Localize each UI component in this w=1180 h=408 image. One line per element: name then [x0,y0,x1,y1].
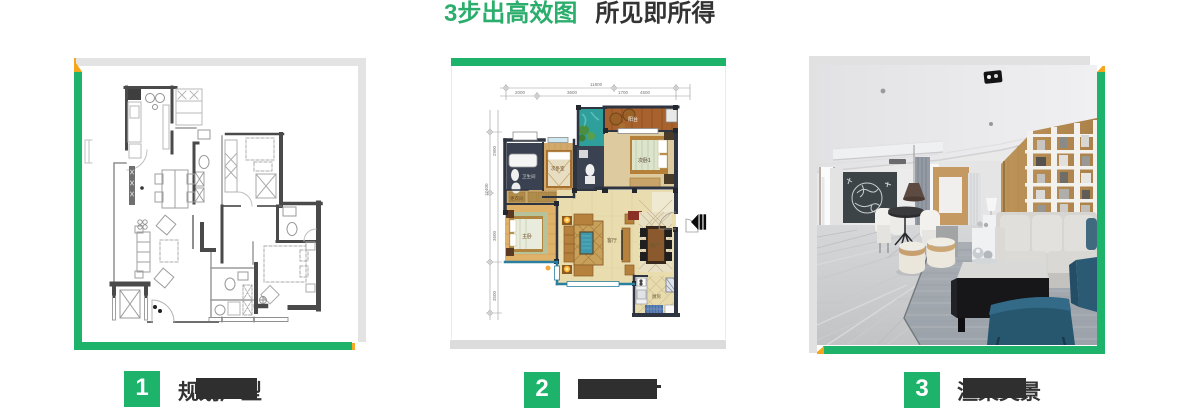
svg-text:次卧室: 次卧室 [551,165,565,172]
svg-text:3600: 3600 [492,230,497,241]
svg-text:客厅: 客厅 [607,237,617,244]
svg-text:11800: 11800 [590,82,603,87]
svg-text:次卧1: 次卧1 [638,157,651,164]
svg-text:卫生间: 卫生间 [522,173,536,180]
svg-text:主卧: 主卧 [522,233,532,240]
svg-text:餐厅: 餐厅 [650,242,660,249]
svg-text:4500: 4500 [640,90,651,95]
svg-text:3600: 3600 [567,90,578,95]
svg-text:更衣间: 更衣间 [510,195,524,202]
svg-text:12400: 12400 [484,183,489,196]
svg-text:厨房: 厨房 [652,293,661,300]
svg-text:2900: 2900 [492,145,497,156]
svg-text:阳台: 阳台 [628,116,638,123]
svg-text:1700: 1700 [618,90,629,95]
svg-text:2000: 2000 [515,90,526,95]
svg-text:3500: 3500 [492,290,497,301]
